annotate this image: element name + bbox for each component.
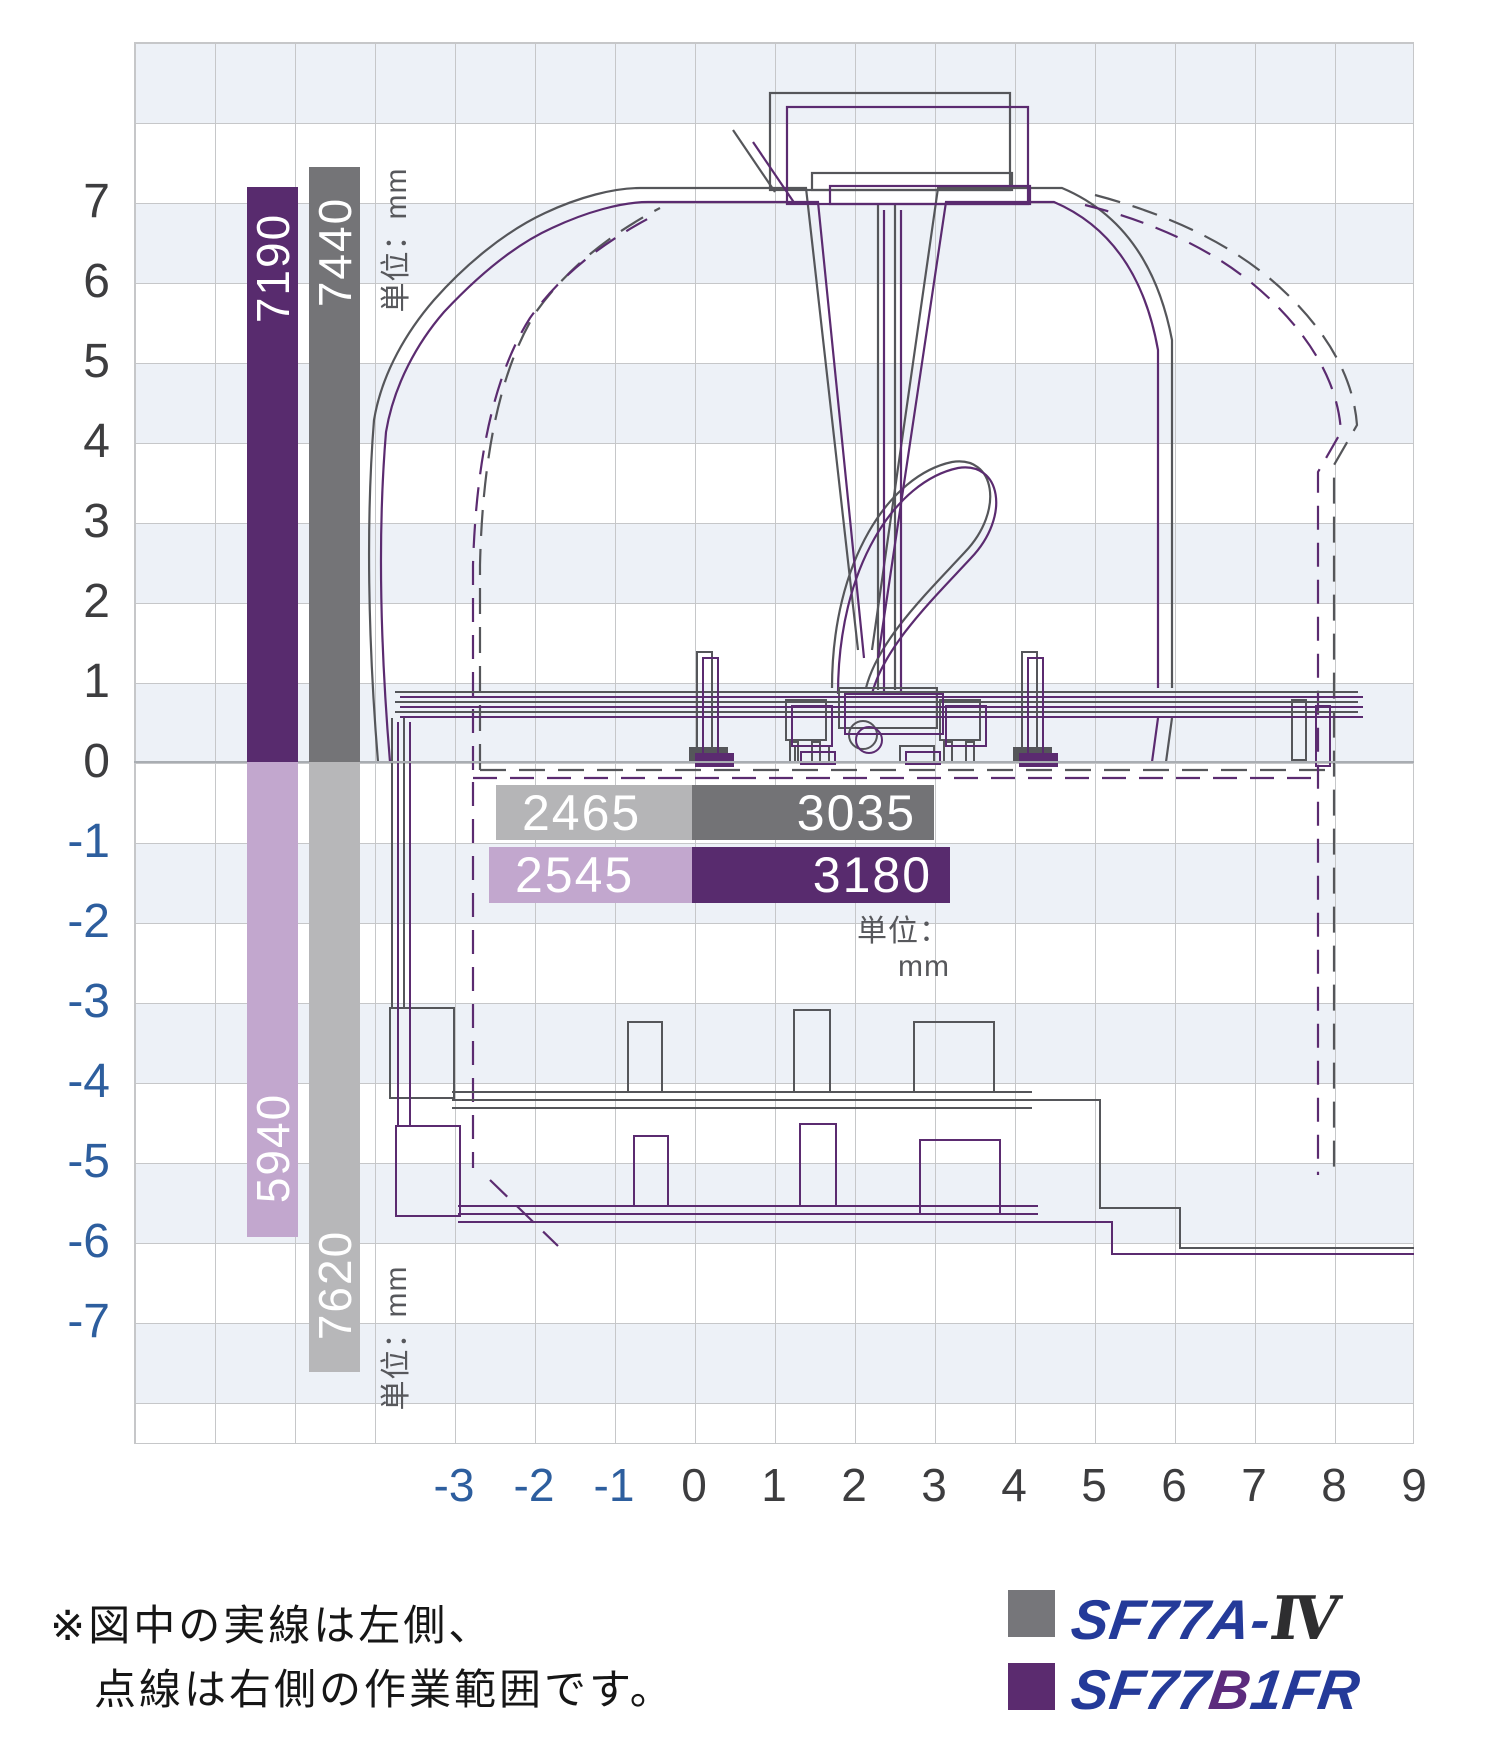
note-line-2: 点線は右側の作業範囲です。 [94,1656,675,1717]
logo-sf77a-blue: SF77A- [1068,1588,1276,1651]
unit-label-top: 単位：mm [371,168,415,313]
working-range-chart: 7 6 5 4 3 2 1 0 -1 -2 -3 -4 -5 -6 -7 -3 … [0,0,1500,1762]
height-value-sf77a: 7440 [308,197,362,307]
reach-left-bar-sf77b1fr: 2545 [489,847,692,903]
reach-left-bar-sf77a: 2465 [496,785,692,840]
logo-sf77a-roman: Ⅳ [1266,1586,1343,1652]
y-tick-2: 2 [0,574,110,630]
x-tick-8: 8 [1321,1458,1347,1512]
y-tick-m3: -3 [0,974,110,1030]
y-tick-0: 0 [0,734,110,790]
x-tick-4: 4 [1001,1458,1027,1512]
x-tick-5: 5 [1081,1458,1107,1512]
x-tick-1: 1 [761,1458,787,1512]
y-tick-5: 5 [0,334,110,390]
y-tick-1: 1 [0,654,110,710]
unit-label-horizontal: 単位：mm [808,906,950,984]
x-tick-m1: -1 [594,1458,635,1512]
sf77a-dashed-outline [480,195,1357,1175]
y-tick-m1: -1 [0,814,110,870]
y-tick-m6: -6 [0,1214,110,1270]
note-line-1: ※図中の実線は左側、 [50,1592,493,1653]
sf77a-solid-outline [369,93,1172,762]
reach-right-bar-sf77a: 3035 [692,785,934,840]
x-tick-m3: -3 [434,1458,475,1512]
x-tick-0: 0 [681,1458,707,1512]
y-tick-3: 3 [0,494,110,550]
x-tick-9: 9 [1401,1458,1427,1512]
sf77b1fr-dashed-outline [473,205,1341,1246]
legend-logo-sf77b1fr: SF77B1FR [1067,1657,1364,1722]
legend-swatch-sf77b1fr [1008,1663,1055,1710]
y-tick-m7: -7 [0,1294,110,1350]
reach-right-bar-sf77b1fr: 3180 [692,847,950,903]
y-tick-m4: -4 [0,1054,110,1110]
depth-value-sf77b1fr: 5940 [246,1093,300,1203]
y-tick-m5: -5 [0,1134,110,1190]
x-tick-7: 7 [1241,1458,1267,1512]
y-tick-m2: -2 [0,894,110,950]
x-tick-3: 3 [921,1458,947,1512]
logo-sf77b-pre: SF77 [1068,1658,1215,1721]
y-tick-4: 4 [0,414,110,470]
x-tick-2: 2 [841,1458,867,1512]
x-tick-6: 6 [1161,1458,1187,1512]
legend-logo-sf77a: SF77A-Ⅳ [1067,1584,1344,1654]
height-value-sf77b1fr: 7190 [246,213,300,323]
y-tick-7: 7 [0,174,110,230]
y-tick-6: 6 [0,254,110,310]
legend-swatch-sf77a [1008,1590,1055,1637]
depth-value-sf77a: 7620 [308,1230,362,1340]
unit-label-bottom: 単位：mm [371,1266,415,1411]
x-tick-m2: -2 [514,1458,555,1512]
logo-sf77b-post: 1FR [1247,1658,1365,1721]
sf77b1fr-solid-outline [381,107,1158,762]
